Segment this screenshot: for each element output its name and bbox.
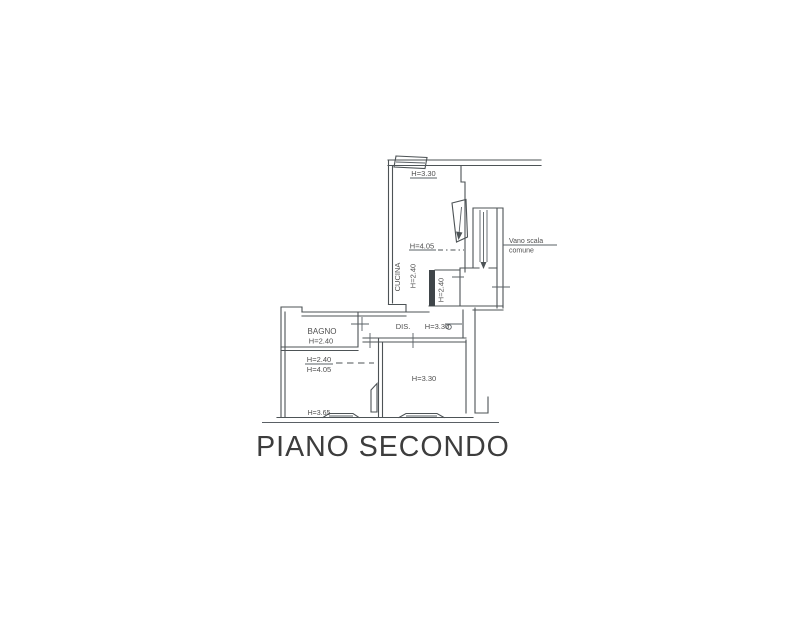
door-leaf bbox=[371, 384, 377, 413]
stairwell-label-line1: Vano scala bbox=[509, 238, 543, 245]
bath-height-label: H=2.40 bbox=[309, 337, 333, 346]
page-title: PIANO SECONDO bbox=[256, 431, 510, 463]
niche-height-label: H=2.40 bbox=[437, 278, 446, 302]
room-labels: H=3.30 H=4.05 CUCINA H=2.40 H=2.40 Vano … bbox=[307, 169, 543, 417]
room-right-height-label: H=3.30 bbox=[412, 374, 436, 383]
stairwell-label-line2: comune bbox=[509, 248, 534, 255]
hall-name-label: DIS. bbox=[396, 322, 411, 331]
kitchen-height-label: H=2.40 bbox=[409, 264, 418, 288]
room-left-height-b-label: H=4.05 bbox=[307, 365, 331, 374]
thick-wall bbox=[429, 270, 435, 306]
floor-plan-drawing: H=3.30 H=4.05 CUCINA H=2.40 H=2.40 Vano … bbox=[0, 0, 795, 630]
kitchen-mid-height-label: H=4.05 bbox=[410, 242, 434, 251]
hall-height-label: H=3.30 bbox=[425, 322, 449, 331]
kitchen-top-height-label: H=3.30 bbox=[411, 169, 435, 178]
room-left-height-c-label: H=3.65 bbox=[308, 410, 331, 417]
stairwell bbox=[473, 208, 503, 308]
room-left-height-a-label: H=2.40 bbox=[307, 355, 331, 364]
bath-name-label: BAGNO bbox=[308, 327, 337, 336]
kitchen-name-label: CUCINA bbox=[393, 263, 402, 292]
top-window bbox=[394, 156, 427, 169]
bottom-windows bbox=[323, 414, 444, 418]
